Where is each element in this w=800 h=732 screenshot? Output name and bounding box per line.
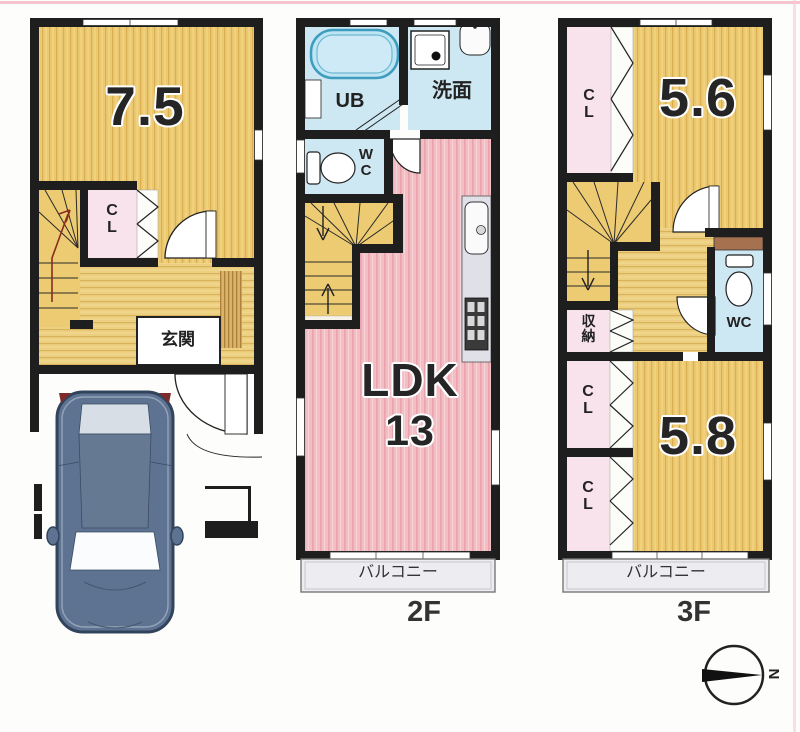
- wall: [254, 18, 263, 374]
- bath-label: UB: [310, 91, 390, 112]
- wall: [352, 253, 360, 325]
- closet-1f-label: CL: [104, 203, 120, 237]
- window: [492, 430, 500, 485]
- wall: [254, 374, 263, 434]
- wall: [610, 251, 618, 301]
- window: [297, 398, 305, 456]
- wall: [80, 190, 88, 267]
- wall: [558, 18, 567, 560]
- toilet-bowl-3f: [726, 272, 752, 306]
- wall: [296, 130, 390, 139]
- room-5-6-size-label: 5.6: [638, 70, 758, 127]
- compass: [702, 646, 763, 704]
- entrance-label: 玄関: [138, 331, 218, 349]
- car-windshield: [70, 532, 160, 570]
- wall: [384, 139, 393, 203]
- wall: [30, 365, 263, 374]
- wall: [212, 258, 263, 267]
- balcony-2f-label: バルコニー: [318, 565, 478, 582]
- wall: [399, 27, 408, 105]
- wall: [558, 301, 618, 310]
- bathtub-inner: [317, 35, 392, 73]
- window: [764, 75, 772, 130]
- wall: [558, 448, 633, 457]
- window: [350, 20, 387, 26]
- closet-3f-bottom-label: CL: [580, 480, 596, 514]
- wall: [30, 181, 137, 190]
- wall: [633, 352, 683, 361]
- page-edge-top: [0, 1, 800, 4]
- wc-2f-label: WC: [358, 147, 374, 179]
- wall: [698, 352, 772, 361]
- washroom-label: 洗面: [412, 81, 492, 102]
- parking-boundary-line: [248, 486, 251, 526]
- wall: [420, 130, 491, 139]
- wall: [296, 18, 305, 560]
- door-leaf: [709, 186, 719, 232]
- closet-3f-top-label: CL: [581, 88, 597, 122]
- wc-3f-label: WC: [722, 315, 756, 331]
- wall: [707, 247, 715, 352]
- storage-label: 収納: [581, 314, 596, 343]
- stairs-1f: [39, 188, 80, 327]
- floorplan-page: 7.5 CL 玄関 UB 洗面 WC LDK 13 バルコニー 2F 5.6 C…: [0, 0, 800, 732]
- wall: [352, 244, 403, 253]
- room-5-8-size-label: 5.8: [638, 408, 758, 465]
- balcony-sliding-door: [330, 552, 470, 559]
- toilet-tank-2f: [307, 152, 320, 184]
- car-mirror-left: [47, 527, 59, 545]
- toilet-tank-3f: [726, 255, 753, 267]
- wall: [610, 242, 660, 251]
- floor-2f-label: 2F: [394, 597, 454, 627]
- wall: [651, 182, 660, 242]
- wall: [296, 194, 393, 203]
- window: [255, 130, 263, 160]
- car-rear-window: [79, 404, 151, 434]
- window: [414, 20, 456, 26]
- washing-machine-drain: [432, 52, 441, 61]
- washing-machine-icon: [411, 31, 449, 69]
- car: [47, 392, 183, 632]
- compass-north-label: N: [765, 664, 781, 684]
- balcony-3f-label: バルコニー: [586, 565, 746, 582]
- entrance-step-line: [187, 434, 262, 457]
- entrance-slat-floor: [220, 271, 242, 348]
- wall: [34, 484, 42, 511]
- toilet-bowl-2f: [321, 153, 355, 183]
- storage-door-strip: [610, 310, 633, 352]
- closet-1f-door-strip: [137, 190, 158, 258]
- floor-3f-label: 3F: [664, 597, 724, 627]
- wall: [705, 228, 763, 237]
- shelf-brown: [714, 237, 763, 250]
- parking-boundary-line: [205, 486, 251, 489]
- window: [83, 20, 178, 26]
- ldk-size-label: 13: [335, 409, 485, 454]
- wall: [34, 514, 42, 539]
- wall: [70, 320, 93, 329]
- balcony-sliding-door: [612, 552, 748, 559]
- closet-door-strip: [610, 361, 633, 448]
- wall: [296, 18, 500, 27]
- car-roof: [79, 434, 151, 528]
- kitchen-faucet: [477, 226, 486, 235]
- window: [297, 140, 305, 173]
- wall: [558, 173, 633, 182]
- wall: [80, 258, 158, 267]
- window: [764, 423, 772, 480]
- wall: [296, 320, 360, 329]
- page-edge-right: [793, 0, 796, 732]
- car-mirror-right: [171, 527, 183, 545]
- window: [764, 273, 772, 325]
- wall: [558, 352, 633, 361]
- ldk-label: LDK: [335, 356, 485, 404]
- closet-3f-mid-label: CL: [580, 384, 596, 418]
- parking-wall-block: [205, 521, 258, 538]
- door-leaf: [206, 211, 216, 258]
- entrance-door-leaf: [225, 374, 247, 434]
- room-7-5-size-label: 7.5: [80, 78, 210, 136]
